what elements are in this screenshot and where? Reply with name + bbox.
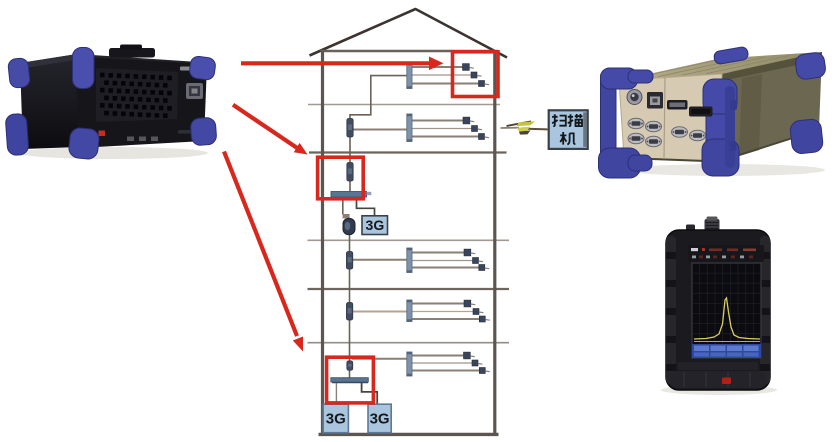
svg-text:3G: 3G — [370, 411, 390, 428]
svg-text:3G: 3G — [366, 217, 385, 233]
svg-text:3G: 3G — [326, 411, 346, 428]
